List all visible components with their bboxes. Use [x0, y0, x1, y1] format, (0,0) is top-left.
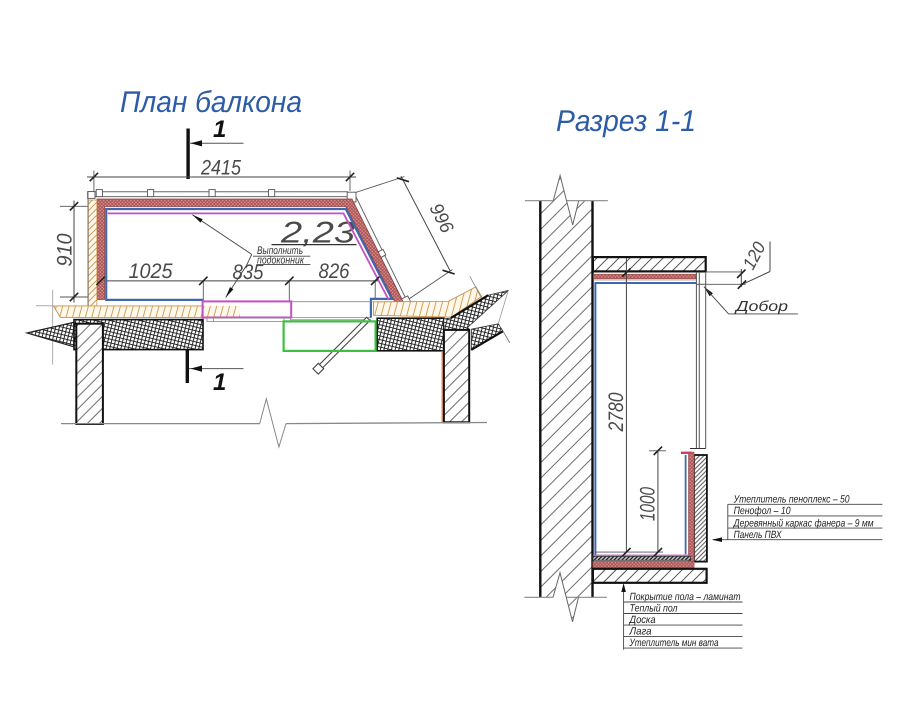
svg-text:Деревянный каркас фанера – 9 м: Деревянный каркас фанера – 9 мм — [733, 517, 874, 529]
svg-text:План балкона: План балкона — [120, 86, 302, 119]
svg-text:2780: 2780 — [605, 392, 628, 432]
svg-text:Теплый пол: Теплый пол — [630, 603, 678, 615]
svg-text:Разрез 1-1: Разрез 1-1 — [556, 105, 696, 138]
svg-text:1025: 1025 — [129, 260, 173, 283]
svg-text:910: 910 — [54, 233, 77, 266]
svg-text:1: 1 — [213, 116, 226, 143]
svg-text:Утеплитель пеноплекс – 50: Утеплитель пеноплекс – 50 — [733, 494, 850, 506]
svg-text:Пенофол – 10: Пенофол – 10 — [734, 505, 791, 517]
svg-text:подоконник: подоконник — [257, 255, 305, 267]
svg-text:2415: 2415 — [200, 157, 241, 180]
svg-text:Лага: Лага — [629, 626, 652, 638]
svg-text:826: 826 — [319, 260, 350, 283]
svg-text:Доска: Доска — [629, 614, 656, 626]
svg-text:Панель ПВХ: Панель ПВХ — [734, 529, 783, 541]
svg-text:1000: 1000 — [637, 487, 660, 521]
svg-text:Добор: Добор — [734, 299, 788, 315]
svg-text:1: 1 — [213, 369, 226, 396]
svg-text:Покрытие пола – ламинат: Покрытие пола – ламинат — [630, 591, 741, 603]
svg-text:Утеплитель мин вата: Утеплитель мин вата — [629, 637, 719, 649]
